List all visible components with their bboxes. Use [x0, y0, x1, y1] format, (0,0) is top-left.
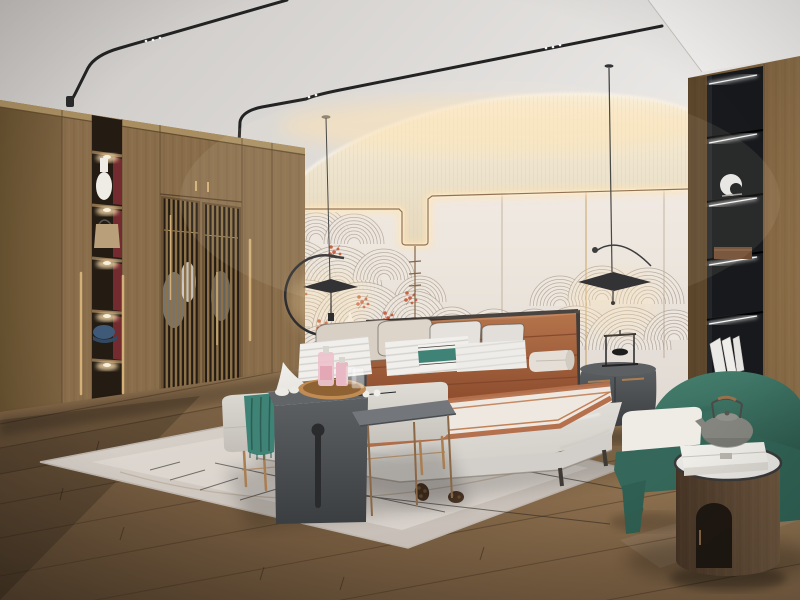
handbag-decor [94, 220, 120, 248]
saddle-side-table [268, 384, 368, 524]
ambient-warm-wash [180, 80, 780, 320]
bed-leg [560, 468, 562, 486]
teal-blanket [244, 393, 276, 460]
table-slot [315, 430, 321, 508]
lid-knob [725, 411, 730, 416]
lantern-bowl [612, 349, 628, 356]
bedroom-illustration: Modern Chinese-style bedroom: walnut war… [0, 0, 800, 600]
wardrobe-side-panel [0, 100, 62, 420]
pendant-ceiling-mount-right [605, 64, 614, 68]
blue-cap-decor [93, 325, 115, 339]
bed-leg [604, 450, 606, 466]
bedroom-scene: Modern Chinese-style bedroom: walnut war… [0, 0, 800, 600]
pillow-teal-band [418, 342, 458, 369]
box-label [720, 453, 732, 459]
nightstand-top [580, 362, 656, 376]
bolster-pillow [529, 350, 575, 372]
drum-arch-notch [696, 503, 732, 568]
track-end-fitting-left [66, 96, 74, 107]
leaning-books [710, 336, 744, 376]
pillow-white-front-right [455, 340, 527, 372]
counterweight [328, 313, 334, 321]
